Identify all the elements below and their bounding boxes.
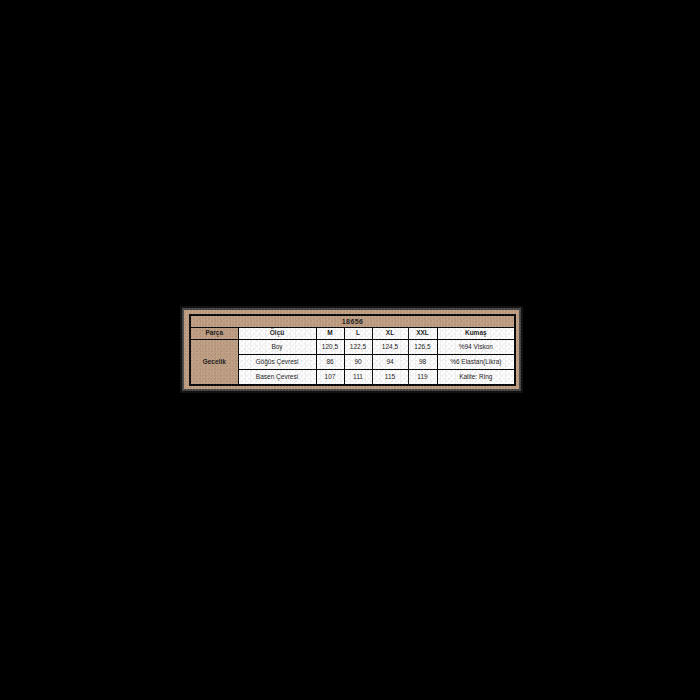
header-parca: Parça xyxy=(190,328,238,340)
value-l: 90 xyxy=(344,355,372,370)
value-l: 122,5 xyxy=(344,340,372,355)
table-row-boy: Gecelik Boy 120,5 122,5 124,5 126,5 %94 … xyxy=(190,340,515,355)
value-m: 107 xyxy=(316,370,344,386)
header-size-xl: XL xyxy=(372,328,408,340)
value-xxl: 126,5 xyxy=(408,340,437,355)
measure-label: Boy xyxy=(238,340,316,355)
measure-label: Basen Çevresi xyxy=(238,370,316,386)
fabric-info: %94 Viskon xyxy=(437,340,515,355)
value-xl: 124,5 xyxy=(372,340,408,355)
size-chart-panel: 18656 Parça Ölçü M L XL XXL Kumaş Geceli… xyxy=(184,310,519,389)
image-canvas: 18656 Parça Ölçü M L XL XXL Kumaş Geceli… xyxy=(0,0,700,700)
header-size-m: M xyxy=(316,328,344,340)
header-olcu: Ölçü xyxy=(238,328,316,340)
header-kumas: Kumaş xyxy=(437,328,515,340)
value-xxl: 98 xyxy=(408,355,437,370)
measure-label: Göğüs Çevresi xyxy=(238,355,316,370)
header-size-l: L xyxy=(344,328,372,340)
value-l: 111 xyxy=(344,370,372,386)
table-row-gogus: Göğüs Çevresi 86 90 94 98 %6 Elastan(Lik… xyxy=(190,355,515,370)
value-xxl: 119 xyxy=(408,370,437,386)
product-code-row: 18656 xyxy=(190,315,515,328)
product-code: 18656 xyxy=(190,315,515,328)
table-row-basen: Basen Çevresi 107 111 115 119 Kalite: Ri… xyxy=(190,370,515,386)
value-m: 86 xyxy=(316,355,344,370)
fabric-info: %6 Elastan(Likra) xyxy=(437,355,515,370)
header-size-xxl: XXL xyxy=(408,328,437,340)
part-name-cell: Gecelik xyxy=(190,340,238,386)
header-row: Parça Ölçü M L XL XXL Kumaş xyxy=(190,328,515,340)
value-xl: 115 xyxy=(372,370,408,386)
value-xl: 94 xyxy=(372,355,408,370)
fabric-info: Kalite: Ring xyxy=(437,370,515,386)
size-chart-table: 18656 Parça Ölçü M L XL XXL Kumaş Geceli… xyxy=(189,314,516,386)
value-m: 120,5 xyxy=(316,340,344,355)
